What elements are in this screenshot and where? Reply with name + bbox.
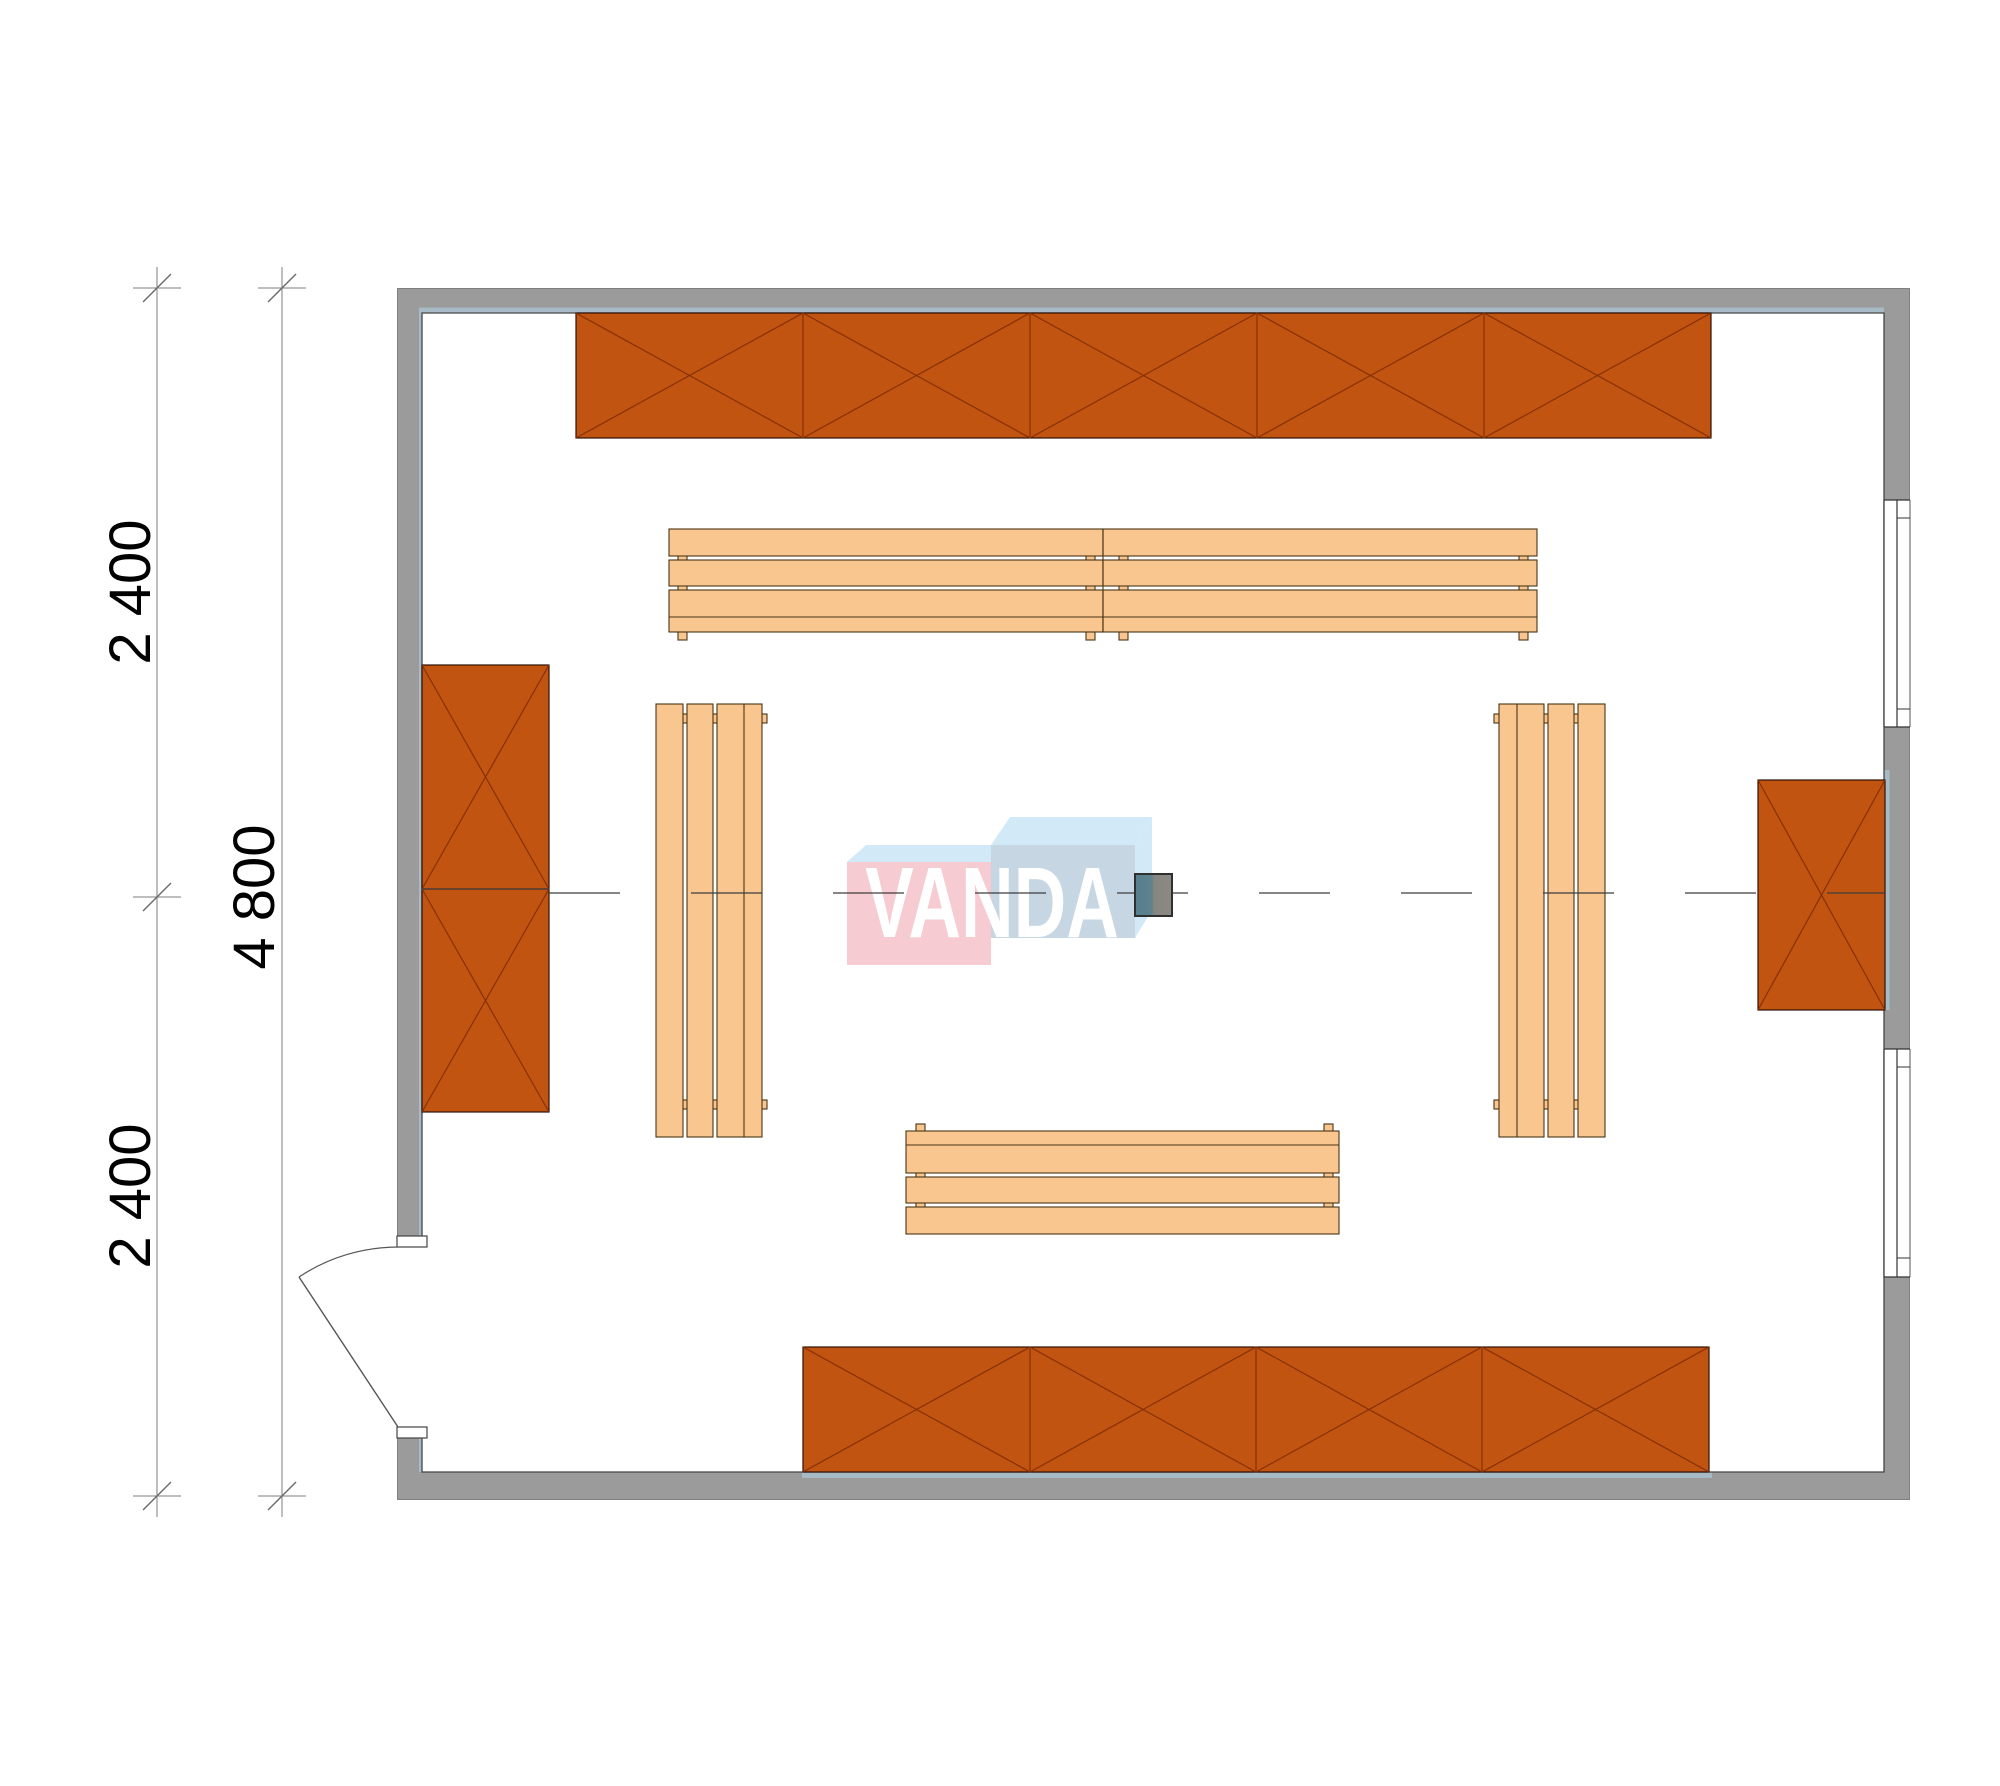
- svg-text:VANDA: VANDA: [865, 847, 1119, 959]
- svg-text:2 400: 2 400: [98, 1123, 163, 1268]
- svg-text:4 800: 4 800: [222, 824, 287, 969]
- svg-text:2 400: 2 400: [98, 519, 163, 664]
